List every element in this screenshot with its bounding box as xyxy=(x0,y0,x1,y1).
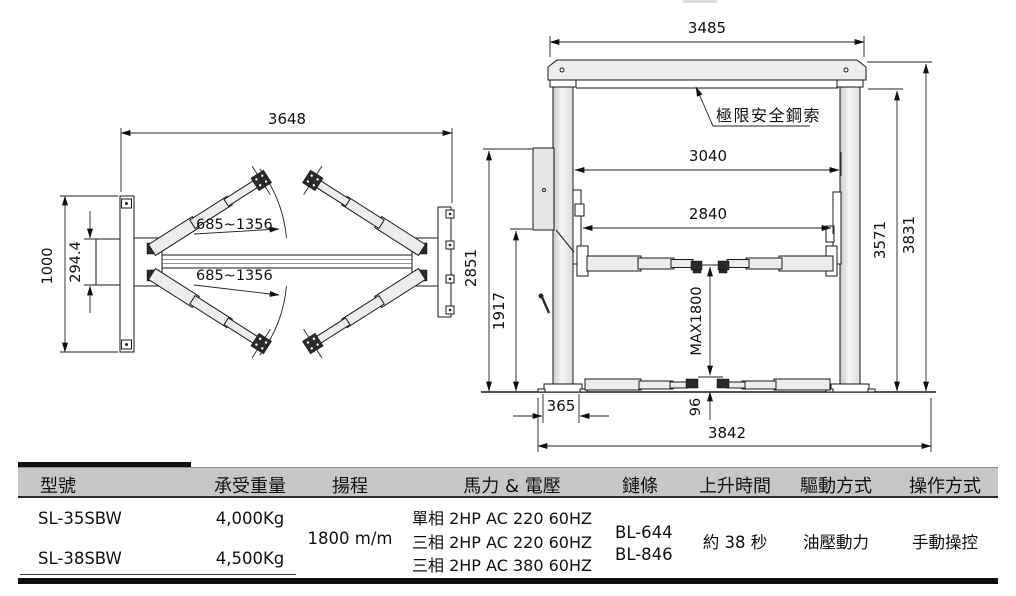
raised-arm-right xyxy=(718,256,833,273)
cell-power-options: 單相 2HP AC 220 60HZ 三相 2HP AC 220 60HZ 三相… xyxy=(412,507,592,578)
power-option-1: 單相 2HP AC 220 60HZ xyxy=(412,507,592,531)
dim-plan-base-plate-depth: 1000 xyxy=(40,248,56,285)
cell-model-1: SL-35SBW xyxy=(38,509,122,528)
table-bottom-bar xyxy=(18,578,998,584)
dim-plan-arm-reach-rear-leader xyxy=(194,285,279,295)
dim-plan-bracket-depth: 294.4 xyxy=(68,241,84,283)
dim-overall-height: 3831 xyxy=(900,216,918,254)
top-beam xyxy=(548,60,866,80)
plan-right-plate xyxy=(438,207,454,317)
dim-under-beam-height: 3571 xyxy=(871,221,889,259)
lowered-arm-left xyxy=(585,379,698,390)
header-rise-time: 上升時間 xyxy=(699,472,771,498)
dim-plan-arm-reach-rear: 685~1356 xyxy=(196,268,273,284)
header-lift: 揚程 xyxy=(332,472,368,498)
chain-2: BL-846 xyxy=(615,544,673,566)
release-lever xyxy=(539,294,549,313)
plan-arm-rear-right xyxy=(297,260,431,362)
dim-plan-total-width-lines xyxy=(121,128,452,203)
dim-plan-total-width: 3648 xyxy=(268,110,306,128)
model-row-divider xyxy=(20,574,296,575)
dim-beam-width: 3485 xyxy=(688,19,726,37)
cell-lift-height: 1800 m/m xyxy=(308,529,393,548)
dim-overall-floor-width: 3842 xyxy=(708,424,746,442)
dim-base-width: 365 xyxy=(547,397,576,415)
plan-left-bracket xyxy=(96,239,120,285)
top-edge-artifact xyxy=(683,0,717,3)
header-chain: 鏈條 xyxy=(622,472,658,498)
control-box xyxy=(533,148,554,230)
cell-capacity-1: 4,000Kg xyxy=(216,509,285,528)
dim-column-lower-height: 1917 xyxy=(490,292,508,330)
plan-arm-front-left xyxy=(143,162,277,264)
plan-view: 3648 1000 294.4 xyxy=(40,110,454,362)
plan-arm-front-right xyxy=(297,162,431,264)
header-model: 型號 xyxy=(40,472,76,498)
header-drive: 驅動方式 xyxy=(800,472,872,498)
cell-capacity-2: 4,500Kg xyxy=(216,549,285,568)
dim-max-lift-height: MAX1800 xyxy=(689,286,705,355)
raised-arm-left xyxy=(587,256,702,273)
dim-plan-bracket-lines xyxy=(84,211,96,313)
spec-table: 型號 承受重量 揚程 馬力 & 電壓 鏈條 上升時間 驅動方式 操作方式 SL-… xyxy=(18,462,998,584)
dim-clear-width: 3040 xyxy=(689,147,727,165)
front-view: 3485 極限安全鋼索 3040 2840 2851 1917 xyxy=(462,19,936,452)
dim-carriage-clear-width: 2840 xyxy=(689,205,727,223)
power-option-2: 三相 2HP AC 220 60HZ xyxy=(412,531,592,555)
safety-cable-label: 極限安全鋼索 xyxy=(716,106,821,125)
cell-model-2: SL-38SBW xyxy=(38,549,122,568)
cell-operation: 手動操控 xyxy=(912,529,978,553)
header-power: 馬力 & 電壓 xyxy=(463,472,560,498)
technical-drawing: .ln{stroke:#1a1a1a;stroke-width:1;fill:n… xyxy=(0,0,1016,460)
dim-min-pad-height: 96 xyxy=(688,398,704,416)
dim-power-unit-height: 2851 xyxy=(462,249,480,287)
dim-beam-width-lines xyxy=(550,36,864,57)
chain-1: BL-644 xyxy=(615,522,673,544)
table-body: SL-35SBW SL-38SBW 4,000Kg 4,500Kg 1800 m… xyxy=(18,498,998,578)
page: .ln{stroke:#1a1a1a;stroke-width:1;fill:n… xyxy=(0,0,1016,596)
header-operation: 操作方式 xyxy=(909,472,981,498)
plan-cross-beam xyxy=(134,255,440,268)
table-header-row: 型號 承受重量 揚程 馬力 & 電壓 鏈條 上升時間 驅動方式 操作方式 xyxy=(18,467,998,498)
cell-rise-time: 約 38 秒 xyxy=(703,529,768,553)
lowered-arm-right xyxy=(717,379,830,390)
cell-chains: BL-644 BL-846 xyxy=(615,522,673,565)
dim-column-lower-lines xyxy=(510,229,532,391)
header-capacity: 承受重量 xyxy=(214,472,286,498)
dim-power-unit-height-lines xyxy=(483,149,532,391)
plan-left-base-plate xyxy=(120,196,134,352)
power-option-3: 三相 2HP AC 380 60HZ xyxy=(412,554,592,578)
cell-drive-type: 油壓動力 xyxy=(803,529,869,553)
dim-plan-arm-reach-front: 685~1356 xyxy=(196,217,273,233)
